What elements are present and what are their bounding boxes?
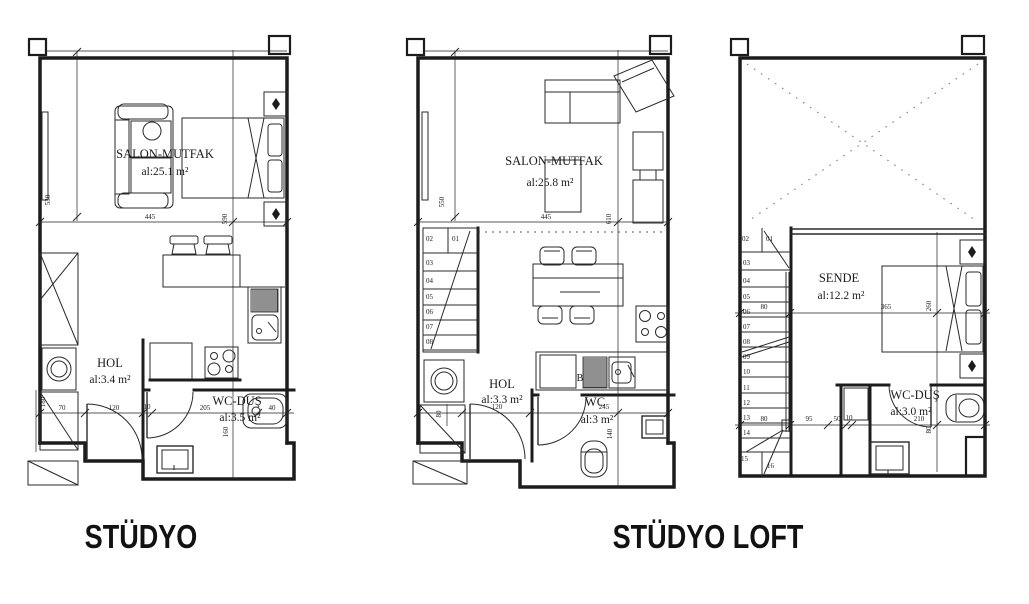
dim-260: 260 [925,300,933,311]
kitchen-counter-edge [240,255,285,287]
dim-80-wc: 80 [925,426,933,434]
bar-stool [204,236,232,254]
bar-stool [170,236,198,254]
dining-table [533,264,623,306]
entry-door [470,404,525,459]
dim-530: 530 [44,194,52,205]
room-area-hol: al:3.4 m² [89,374,131,386]
stair-step: 02 [742,235,750,243]
dim-80: 80 [435,410,443,418]
stair-step: 08 [743,338,751,346]
room-label-salon: SALON-MUTFAK [505,154,603,168]
dishwasher [583,357,607,388]
dim-160: 160 [222,426,230,437]
stair-step: 13 [743,414,751,422]
stair-step: 03 [426,259,434,267]
shaft [413,461,467,484]
bathroom-door [147,392,193,438]
shaft [28,461,78,485]
dim-80: 80 [761,415,769,423]
stair-step: 14 [743,429,751,437]
room-area-salon: al:25.8 m² [527,177,574,189]
closet-shaft [40,253,78,345]
chimney-block [731,39,748,55]
stair-step: 04 [426,277,434,285]
dim-70: 70 [59,404,67,412]
dim-365: 365 [881,303,892,311]
dim-245: 245 [599,403,610,411]
kitchen-cabinet [540,355,576,388]
stair-step: 04 [743,277,751,285]
stair-step: 05 [426,293,434,301]
floor-plan-sheet: SALON-MUTFAK al:25.1 m² HOL al:3.4 m² WC… [0,0,1029,604]
dim-50: 50 [834,415,842,423]
wall-niche [966,437,985,476]
dining-chair [540,247,564,265]
nightstand [264,92,288,116]
corner-sofa [545,60,674,223]
room-label-sende: SENDE [819,271,860,285]
dining-chair [538,306,562,324]
stair-step: 12 [743,399,751,407]
side-table [143,122,161,140]
chimney-block [962,36,984,54]
dim-80: 80 [761,303,769,311]
dining-chair [572,247,596,265]
outer-wall-bottom [418,443,674,487]
window [42,112,48,200]
room-label-hol: HOL [97,356,123,370]
washing-machine [870,442,909,474]
dim-120: 120 [492,403,503,411]
dim-180: 180 [39,396,47,407]
window [422,112,428,200]
dim-610: 610 [605,213,613,224]
plan-studyo-loft-upper: 01 02 03 04 05 06 07 08 09 10 11 12 13 1… [731,36,990,476]
nightstand [960,354,984,378]
dim-10: 10 [144,403,152,411]
nightstand [960,240,984,264]
plan-studyo-loft-lower: 01 02 03 04 05 06 07 08 [407,36,674,487]
stair-step: 01 [452,235,460,243]
dim-590: 590 [221,213,229,224]
plan-title-studyo: STÜDYO [85,520,198,556]
dim-40: 40 [269,404,277,412]
room-area-salon: al:25.1 m² [142,166,189,178]
dim-445: 445 [145,213,156,221]
nightstand [264,202,288,226]
chimney-block [407,39,424,55]
room-area-wc: al:3.0 m² [890,406,932,418]
appliance-letter: B [577,373,584,384]
stair-step: 15 [741,455,749,463]
room-label-salon: SALON-MUTFAK [116,147,214,161]
blanket-fold [248,118,264,198]
stair-step: 05 [743,293,751,301]
room-area-wc: al:3 m² [581,414,614,426]
boiler-niche [642,416,668,438]
room-area-sende: al:12.2 m² [818,290,865,302]
stove [636,306,668,342]
kitchen-cabinet [150,343,192,379]
outer-wall [418,58,668,443]
stair-step: 01 [766,235,774,243]
dim-550: 550 [438,196,446,207]
stair-step: 08 [426,338,434,346]
room-label-hol: HOL [489,377,515,391]
stair-step: 03 [743,259,751,267]
stair-step: 10 [743,368,751,376]
staircase: 01 02 03 04 05 06 07 08 09 10 11 12 13 1… [740,228,791,476]
dim-95: 95 [806,415,814,423]
dining-chair [570,306,594,324]
kitchen-sink [609,357,635,388]
floor-plan-drawing: SALON-MUTFAK al:25.1 m² HOL al:3.4 m² WC… [0,0,1029,604]
boiler-niche [157,446,193,473]
dim-445: 445 [541,213,552,221]
stair-step: 11 [743,384,750,392]
kitchen-counter [163,255,240,287]
stair-step: 07 [426,323,434,331]
plan-studyo: SALON-MUTFAK al:25.1 m² HOL al:3.4 m² WC… [28,36,294,485]
stair-step: 02 [426,235,434,243]
dim-10: 10 [846,414,854,422]
washing-machine [424,360,464,402]
stair-step: 16 [767,462,775,470]
chimney-block [29,39,46,55]
loft-railing [791,229,985,234]
room-label-wc: WC-DUŞ [212,394,261,408]
room-area-hol: al:3.3 m² [481,394,523,406]
dim-140: 140 [606,428,614,439]
dim-205: 205 [200,404,211,412]
stair-step: 09 [743,353,751,361]
wc-door [538,397,586,445]
room-area-wc: al:3.5 m² [219,412,261,424]
plan-title-studyo-loft: STÜDYO LOFT [613,520,804,556]
washing-machine [42,348,76,390]
room-label-wc: WC-DUŞ [890,388,939,402]
toilet [581,441,607,477]
void-cross [747,64,978,222]
stair-step: 07 [743,323,751,331]
dim-120: 120 [109,404,120,412]
entry-door [87,404,142,459]
stair-step: 06 [426,308,434,316]
outer-wall [740,58,985,476]
staircase: 01 02 03 04 05 06 07 08 [423,228,478,352]
kitchen-sink [252,315,278,340]
toilet [946,394,984,422]
